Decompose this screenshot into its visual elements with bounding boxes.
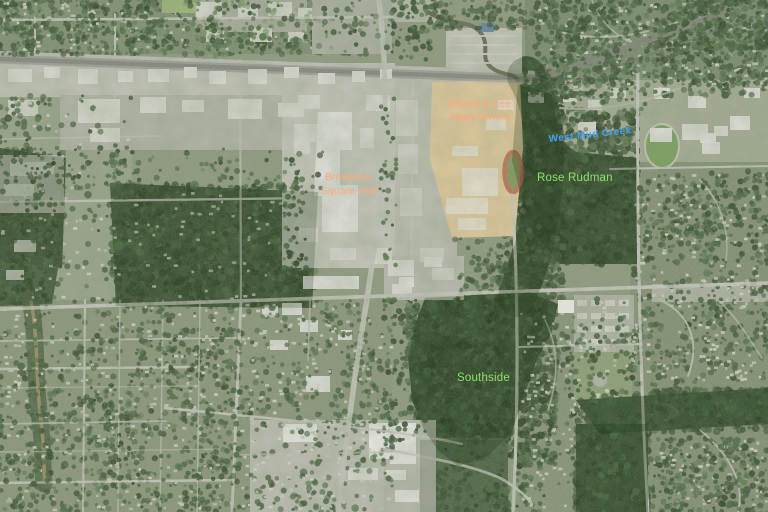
svg-text:Rose Rudman: Rose Rudman: [537, 172, 613, 184]
svg-text:High School: High School: [451, 111, 510, 123]
svg-text:Broadway: Broadway: [325, 172, 372, 183]
svg-text:Square Mall: Square Mall: [321, 186, 378, 197]
svg-text:Robert E Lee: Robert E Lee: [447, 98, 511, 110]
svg-text:Southside: Southside: [457, 372, 510, 384]
